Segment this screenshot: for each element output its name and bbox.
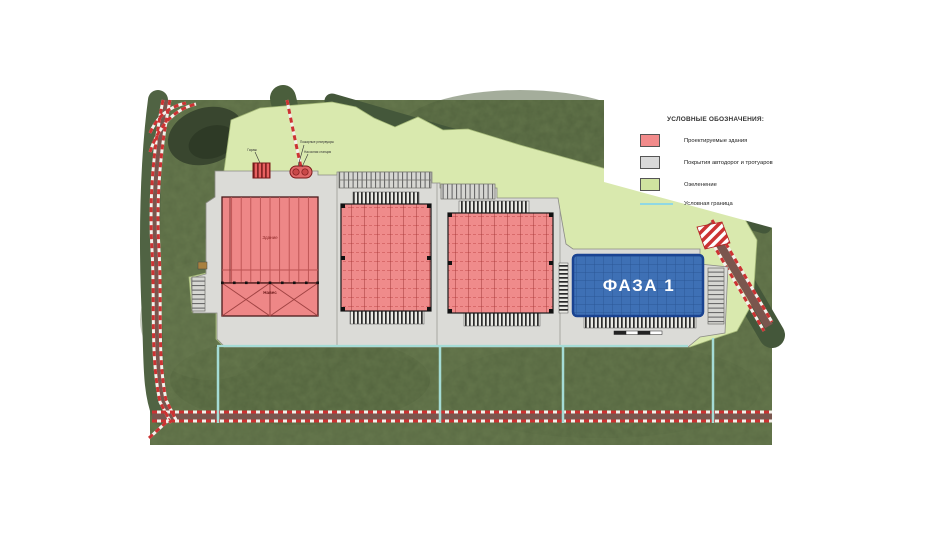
building-3-body (448, 213, 553, 313)
legend-label-pavement: Покрытия автодорог и тротуаров (684, 160, 773, 166)
dock-row-b4-bottom (584, 316, 696, 328)
parking-row-west (192, 277, 205, 311)
building-2-body (341, 204, 431, 311)
fire-tanks-label: Пожарные резервуары (300, 140, 335, 144)
legend-swatch-pavement (640, 156, 660, 169)
legend: УСЛОВНЫЕ ОБОЗНАЧЕНИЯ: Проектируемые здан… (640, 116, 815, 123)
legend-label-buildings: Проектируемые здания (684, 138, 747, 144)
phase-label: ФАЗА 1 (603, 276, 675, 295)
parking-row-north-b3 (441, 184, 495, 199)
guard-booth (198, 262, 207, 269)
legend-item-boundary: Условная граница (640, 201, 733, 207)
site-plan-page: { "legend": { "title": "УСЛОВНЫЕ ОБОЗНАЧ… (0, 0, 944, 556)
legend-item-buildings: Проектируемые здания (640, 134, 747, 147)
legend-item-greenery: Озеленение (640, 178, 717, 191)
building-3-warehouse (448, 213, 553, 313)
dock-row-b4-left (559, 263, 568, 313)
legend-swatch-boundary-line (640, 203, 673, 205)
legend-label-greenery: Озеленение (684, 182, 717, 188)
garage-label: Гараж (247, 148, 257, 152)
dock-row-b2-top (353, 192, 419, 204)
legend-item-pavement: Покрытия автодорог и тротуаров (640, 156, 773, 169)
pump-station-label: Насосная станция (304, 150, 331, 154)
garage-building (253, 163, 270, 178)
fire-tank-2 (302, 169, 308, 175)
master-plan-drawing: Здание Навес ФАЗА 1 (0, 0, 944, 556)
legend-title: УСЛОВНЫЕ ОБОЗНАЧЕНИЯ: (667, 116, 815, 123)
building-1-warehouse: Здание Навес (221, 197, 319, 316)
building-1-label: Здание (262, 235, 278, 240)
scale-bar (614, 331, 662, 335)
legend-swatch-buildings (640, 134, 660, 147)
dock-row-b3-bottom (464, 313, 540, 326)
legend-label-boundary: Условная граница (684, 201, 733, 207)
dock-row-b3-top (459, 201, 529, 213)
dock-row-b2-bottom (350, 311, 424, 324)
legend-swatch-greenery (640, 178, 660, 191)
fire-tank-1 (293, 169, 299, 175)
building-2-warehouse (341, 204, 431, 311)
canopy-label: Навес (263, 290, 277, 295)
parking-row-east (708, 268, 724, 324)
